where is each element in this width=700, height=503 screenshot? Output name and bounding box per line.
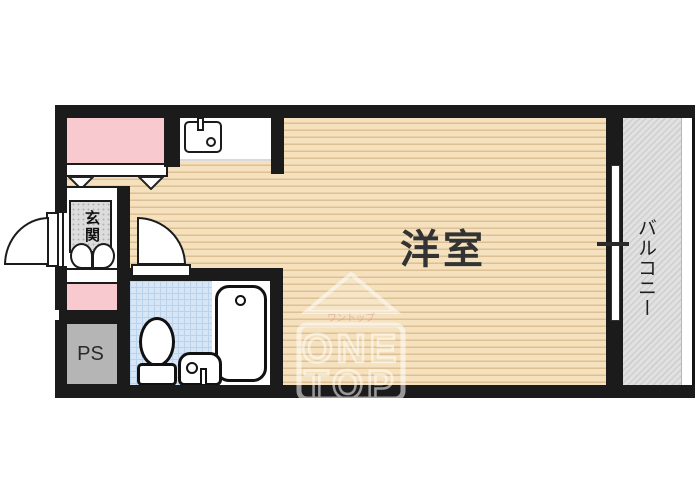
- bathroom-door-leaf: [131, 264, 191, 277]
- western-room-label: 洋室: [393, 227, 493, 273]
- wall-left-middle: [55, 266, 67, 310]
- onetop-watermark-logo: ワントップ ONE TOP: [294, 270, 408, 404]
- front-door-swing-arc: [4, 217, 49, 265]
- wall-divider: [59, 310, 119, 322]
- storage-nook: [62, 284, 119, 310]
- closet-door-track: [65, 163, 168, 177]
- bathtub-drain-icon: [235, 295, 246, 306]
- kitchen-sink-drain-icon: [206, 137, 216, 147]
- wall-kitchen-stub: [271, 117, 284, 174]
- balcony-label: バルコニー: [635, 198, 659, 338]
- wash-basin-drain-icon: [200, 368, 207, 386]
- floor-plan: 玄関 PS 洋室 バルコニー ワントップ ONE TOP: [0, 0, 700, 503]
- shoe-cabinet-door-left: [70, 243, 93, 269]
- shoe-cabinet-door-right: [92, 243, 115, 269]
- pipe-space: PS: [62, 322, 119, 386]
- watermark-line2: TOP: [304, 363, 398, 404]
- kitchen-faucet-icon: [197, 117, 204, 131]
- wash-basin-faucet-icon: [186, 362, 198, 374]
- window-center-mark: [597, 242, 629, 246]
- closet-door-swing-triangle-icon: [138, 176, 164, 190]
- balcony-railing: [681, 117, 695, 386]
- wall-entrance-column: [117, 186, 130, 386]
- house-roof-icon: [306, 274, 396, 312]
- wall-bathroom-right: [270, 268, 283, 386]
- wall-left-upper: [55, 105, 67, 213]
- closet: [67, 117, 164, 164]
- toilet-tank: [137, 363, 177, 386]
- wall-top: [55, 105, 695, 118]
- watermark-kana: ワントップ: [327, 313, 375, 324]
- wall-closet-kitchen: [164, 117, 180, 167]
- pipe-space-label: PS: [77, 343, 104, 366]
- shoe-cabinet: [62, 268, 119, 284]
- toilet-bowl: [139, 317, 175, 367]
- wall-left-lower: [55, 320, 67, 398]
